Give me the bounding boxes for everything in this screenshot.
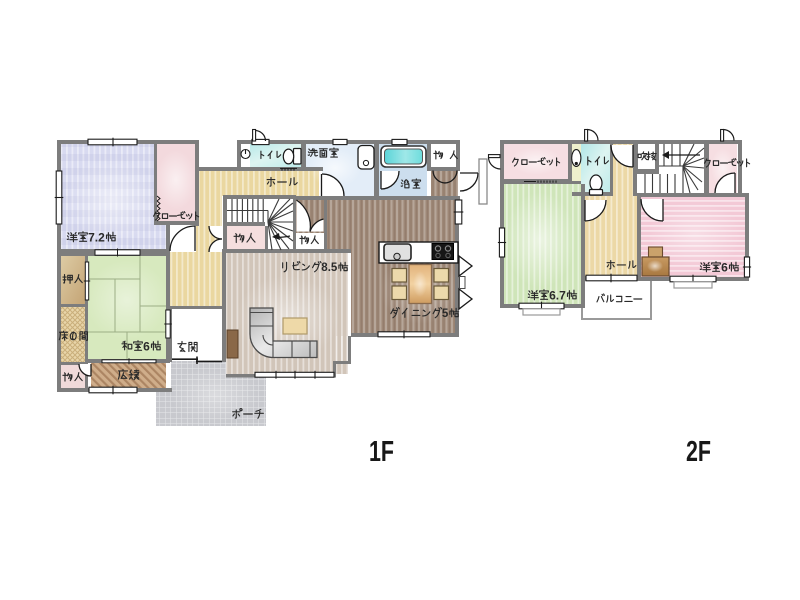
svg-text:5: 5 — [442, 308, 449, 320]
svg-text:7: 7 — [559, 288, 566, 302]
svg-text:6: 6 — [721, 260, 728, 274]
svg-text:5: 5 — [331, 262, 338, 274]
svg-text:2: 2 — [98, 230, 105, 244]
svg-text:2F: 2F — [686, 436, 711, 468]
svg-text:1F: 1F — [369, 436, 394, 468]
svg-text:6: 6 — [143, 339, 150, 353]
